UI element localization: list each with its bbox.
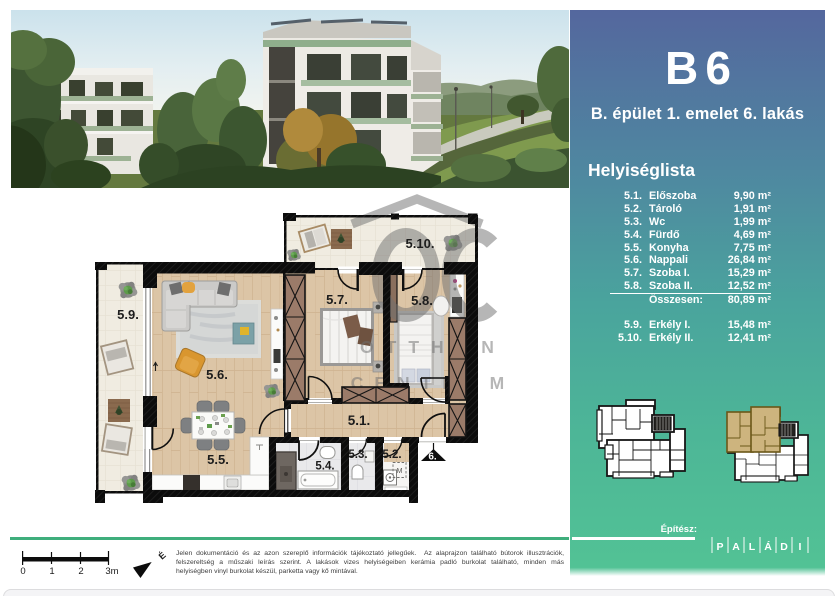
- svg-text:É: É: [157, 550, 168, 561]
- svg-text:5.9.: 5.9.: [117, 307, 139, 322]
- svg-text:5.8.: 5.8.: [411, 293, 433, 308]
- svg-text:Á: Á: [764, 540, 772, 553]
- svg-text:5.10.: 5.10.: [406, 236, 435, 251]
- svg-text:M: M: [397, 468, 403, 475]
- svg-text:0: 0: [20, 566, 25, 577]
- svg-text:A: A: [732, 541, 740, 553]
- svg-text:D: D: [780, 541, 788, 553]
- svg-text:1: 1: [49, 566, 54, 577]
- svg-text:6.: 6.: [428, 452, 437, 463]
- svg-text:P: P: [716, 541, 723, 553]
- svg-text:5.7.: 5.7.: [326, 292, 348, 307]
- svg-text:5.6.: 5.6.: [206, 367, 228, 382]
- svg-text:2: 2: [78, 566, 83, 577]
- svg-text:5.3.: 5.3.: [348, 449, 367, 461]
- svg-text:OTTHON: OTTHON: [360, 337, 506, 357]
- svg-text:5.4.: 5.4.: [315, 461, 334, 473]
- svg-text:5.5.: 5.5.: [207, 452, 229, 467]
- svg-text:5.2.: 5.2.: [382, 449, 401, 461]
- svg-text:I: I: [799, 541, 802, 553]
- svg-text:3m: 3m: [105, 566, 118, 577]
- svg-text:L: L: [749, 541, 756, 553]
- svg-text:5.1.: 5.1.: [348, 413, 371, 428]
